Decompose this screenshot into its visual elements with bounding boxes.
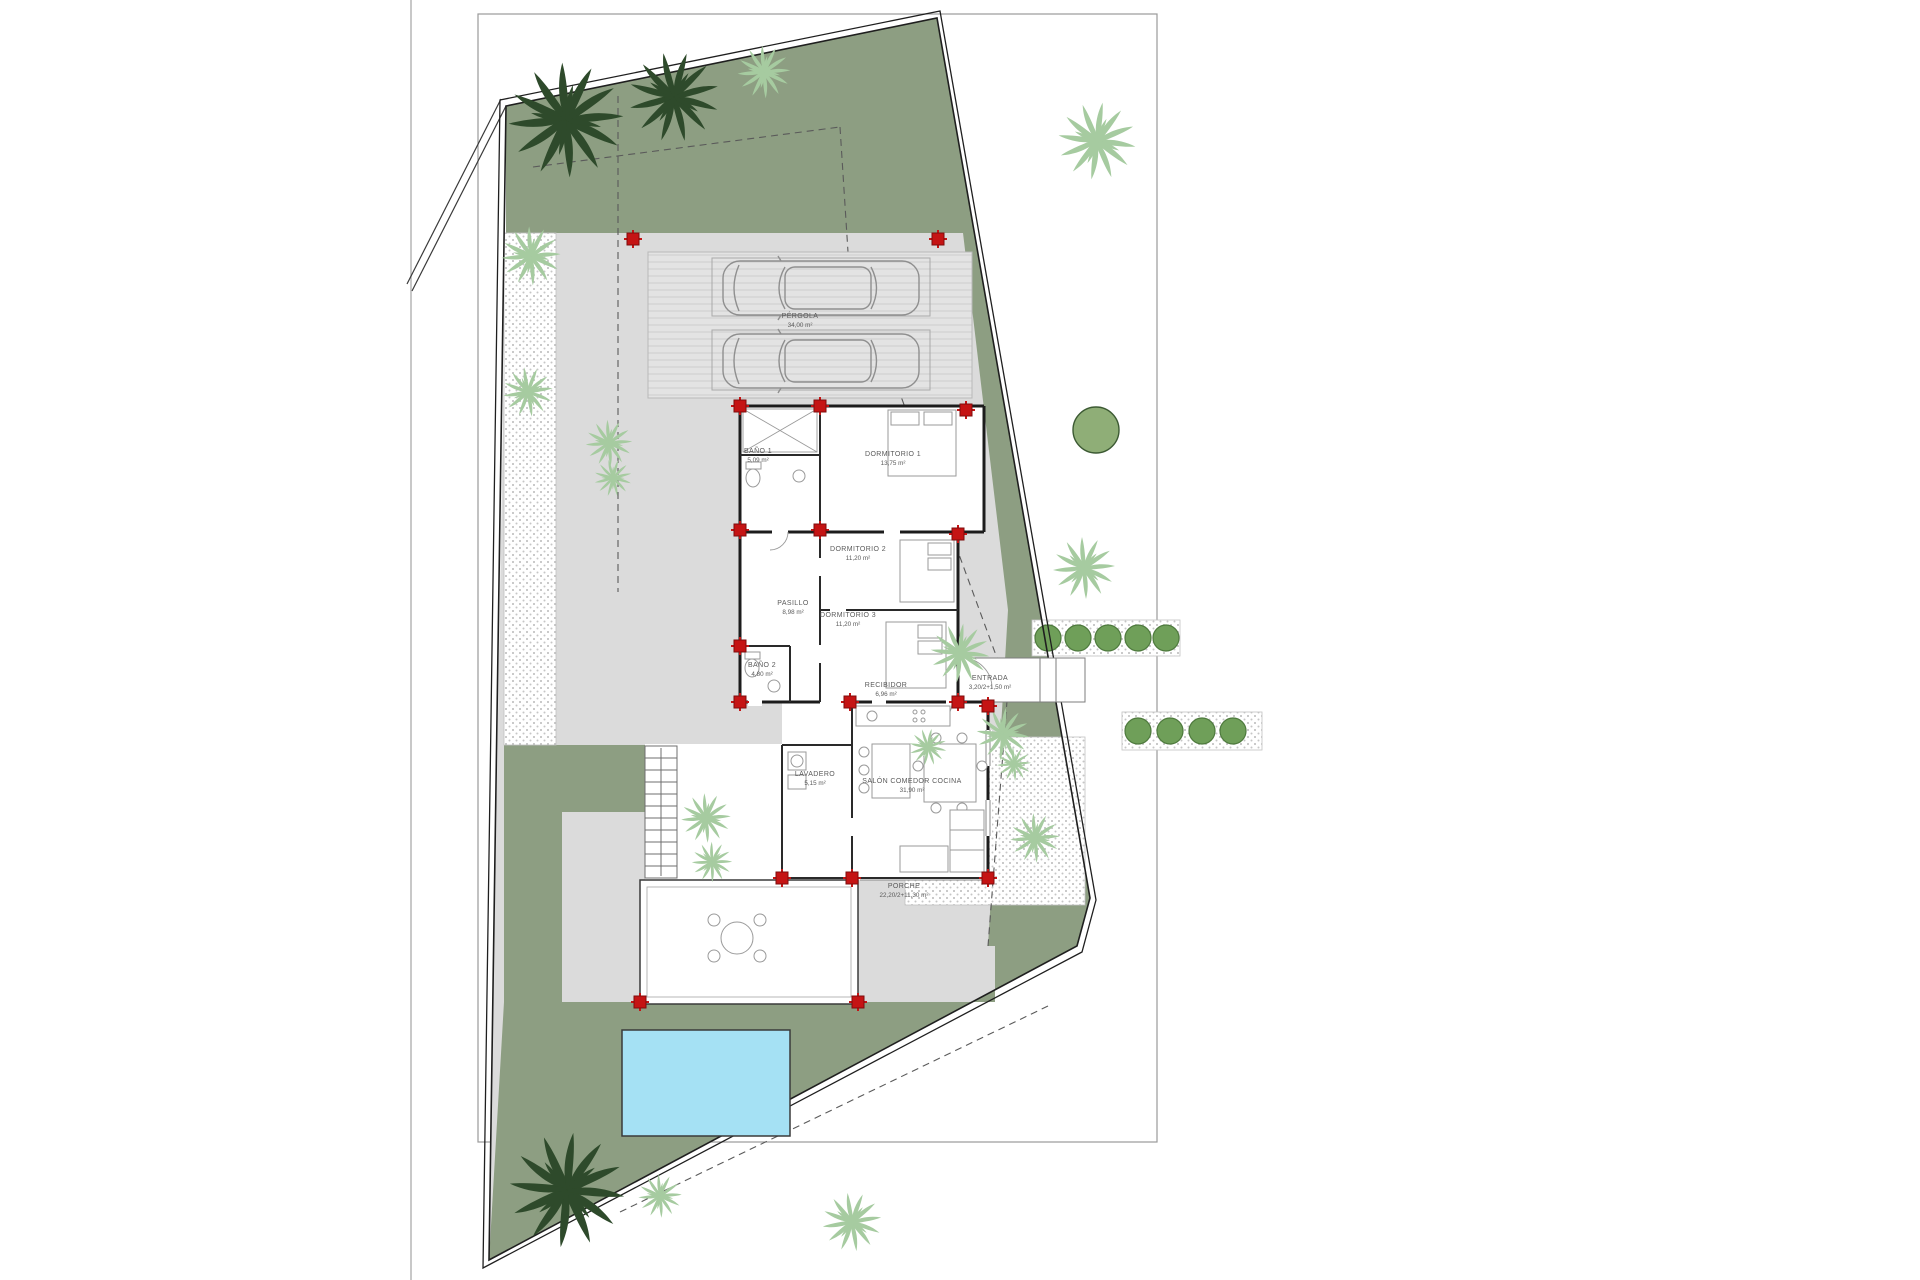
column-marker-icon <box>949 693 967 711</box>
kitchen-counter <box>856 706 950 726</box>
bush-icon <box>1095 625 1121 651</box>
column-marker-icon <box>731 693 749 711</box>
svg-text:11,20 m²: 11,20 m² <box>846 555 870 562</box>
svg-text:6,96 m²: 6,96 m² <box>875 691 896 698</box>
column-marker-icon <box>957 401 975 419</box>
palm-tree-icon <box>1051 95 1143 187</box>
neighbor-boundary-line <box>407 99 506 291</box>
column-marker-icon <box>843 869 861 887</box>
column-marker-icon <box>731 521 749 539</box>
column-marker-icon <box>811 521 829 539</box>
svg-text:8,98 m²: 8,98 m² <box>782 609 803 616</box>
svg-text:ENTRADA: ENTRADA <box>972 675 1008 682</box>
stairs-icon <box>645 746 677 878</box>
column-marker-icon <box>773 869 791 887</box>
svg-text:LAVADERO: LAVADERO <box>795 771 835 778</box>
svg-text:13,75 m²: 13,75 m² <box>881 460 906 467</box>
svg-text:31,90 m²: 31,90 m² <box>900 787 925 794</box>
svg-text:3,20/2+1,50 m²: 3,20/2+1,50 m² <box>969 684 1012 691</box>
svg-text:DORMITORIO 1: DORMITORIO 1 <box>865 451 921 458</box>
svg-text:PÉRGOLA: PÉRGOLA <box>782 311 819 320</box>
column-marker-icon <box>624 230 642 248</box>
svg-text:22,20/2+11,30 m²: 22,20/2+11,30 m² <box>879 892 928 899</box>
svg-text:BAÑO 1: BAÑO 1 <box>744 446 772 455</box>
svg-text:34,00 m²: 34,00 m² <box>788 322 813 329</box>
bush-icon <box>1125 718 1151 744</box>
svg-text:4,80 m²: 4,80 m² <box>751 671 772 678</box>
column-marker-icon <box>811 397 829 415</box>
bush-icon <box>1189 718 1215 744</box>
svg-text:11,20 m²: 11,20 m² <box>836 621 860 628</box>
bed-icon <box>900 540 954 602</box>
site-plan-drawing: PÉRGOLA 34,00 m² BAÑO 1 5,09 m² DORMITOR… <box>0 0 1920 1280</box>
bush-icon <box>1065 625 1091 651</box>
column-marker-icon <box>841 693 859 711</box>
svg-text:RECIBIDOR: RECIBIDOR <box>865 682 908 689</box>
bed-icon <box>886 622 946 688</box>
bush-icon <box>1220 718 1246 744</box>
site-plan-page: PÉRGOLA 34,00 m² BAÑO 1 5,09 m² DORMITOR… <box>0 0 1920 1280</box>
palm-tree-icon <box>1042 526 1127 611</box>
pool <box>622 1030 790 1136</box>
bush-icon <box>1157 718 1183 744</box>
svg-text:BAÑO 2: BAÑO 2 <box>748 660 776 669</box>
palm-tree-icon <box>638 1174 681 1217</box>
column-marker-icon <box>979 869 997 887</box>
column-marker-icon <box>849 993 867 1011</box>
svg-text:PORCHE: PORCHE <box>888 883 920 890</box>
svg-text:SALÓN COMEDOR COCINA: SALÓN COMEDOR COCINA <box>862 776 961 785</box>
bush-icon <box>1125 625 1151 651</box>
svg-text:PASILLO: PASILLO <box>777 600 809 607</box>
hedge-row-1 <box>1035 625 1179 651</box>
palm-tree-icon <box>813 1183 891 1261</box>
svg-text:DORMITORIO 2: DORMITORIO 2 <box>830 546 886 553</box>
svg-text:5,15 m²: 5,15 m² <box>804 780 825 787</box>
column-marker-icon <box>731 637 749 655</box>
bush-icon <box>1153 625 1179 651</box>
column-marker-icon <box>979 697 997 715</box>
svg-text:5,09 m²: 5,09 m² <box>747 457 768 464</box>
column-marker-icon <box>949 525 967 543</box>
column-marker-icon <box>731 397 749 415</box>
column-marker-icon <box>631 993 649 1011</box>
tree-icon <box>1073 407 1119 453</box>
svg-text:DORMITORIO 3: DORMITORIO 3 <box>820 612 876 619</box>
gravel-path-left <box>504 233 556 745</box>
column-marker-icon <box>929 230 947 248</box>
